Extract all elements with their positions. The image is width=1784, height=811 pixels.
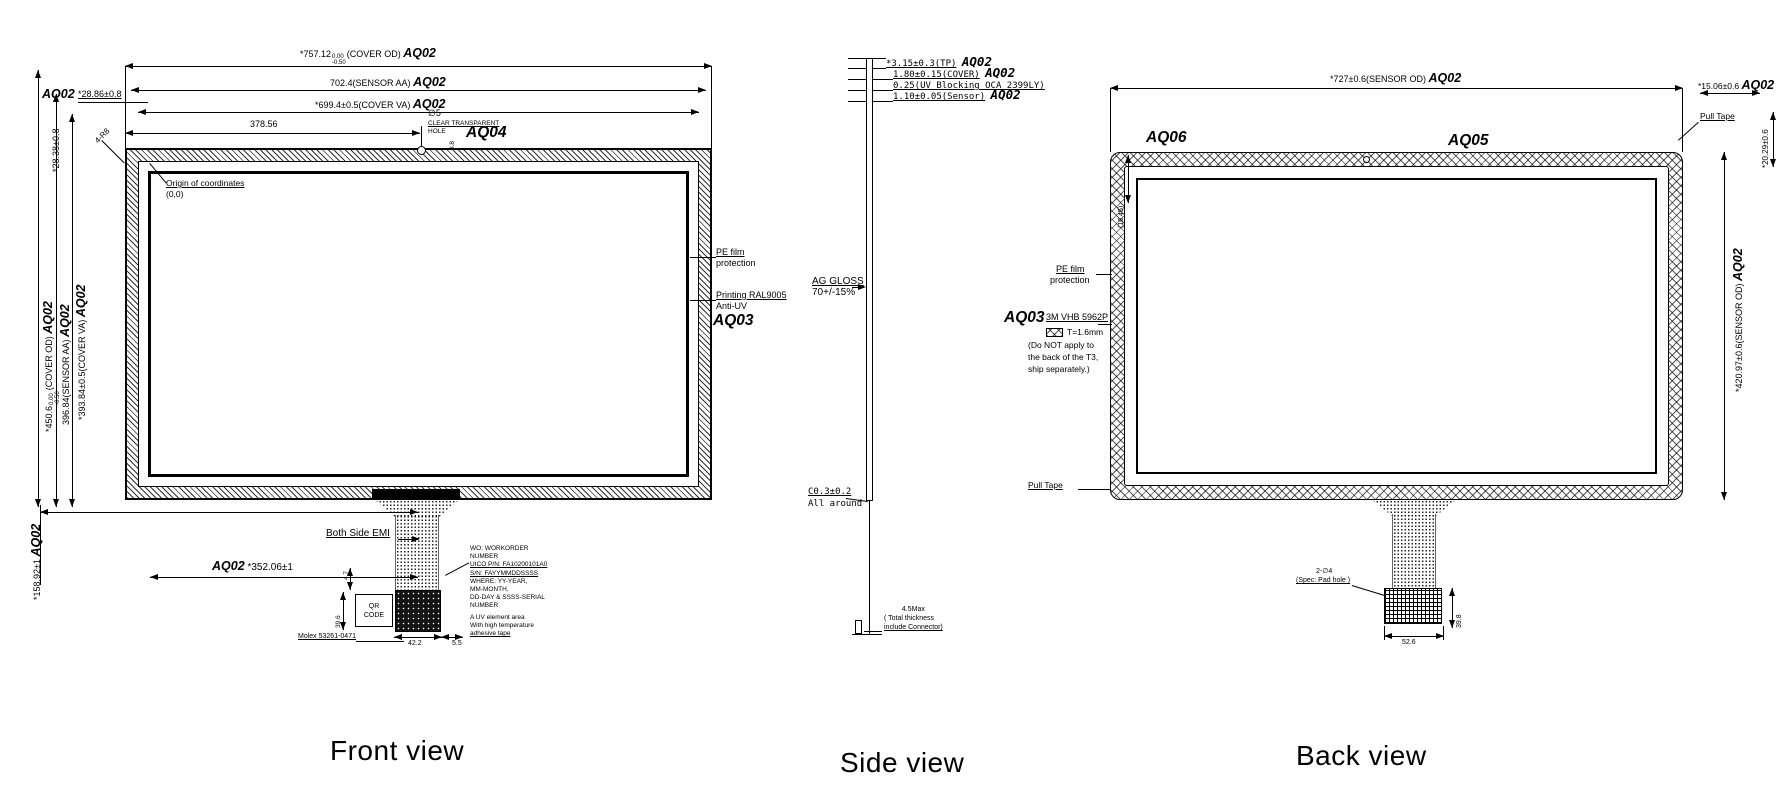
side-view-title: Side view: [840, 747, 964, 779]
pull-tape-bottom-label: Pull Tape: [1028, 481, 1063, 490]
dim-cover-va-width: *699.4±0.5(COVER VA) AQ02: [315, 98, 446, 111]
back-view-title: Back view: [1296, 740, 1427, 772]
dim-line: [1452, 588, 1453, 628]
note-line: MM-MONTH,: [470, 586, 578, 594]
emi-label: Both Side EMI: [326, 529, 390, 540]
workorder-note: WO: WORKORDER NUMBER UICO P/N: FA1020010…: [470, 545, 578, 611]
dim-corner-h: *28.86±0.8: [78, 90, 121, 99]
back-panel-outline: [1110, 152, 1683, 500]
back-inner-outline: [1124, 166, 1669, 486]
dim-line: [131, 90, 706, 91]
dim-line: [441, 637, 463, 638]
back-pe-film-label: PE film: [1056, 265, 1085, 274]
leader-line: [690, 257, 716, 258]
transparent-hole: [417, 146, 426, 155]
side-connector-end: [855, 620, 862, 634]
note-line: 4.5Max: [884, 605, 943, 614]
dim-line: [125, 133, 420, 134]
printing-label: Printing RAL9005: [716, 291, 787, 300]
total-thickness-note: 4.5Max ( Total thickness include Connect…: [884, 605, 943, 632]
callout-aq03-back: AQ03: [1004, 310, 1045, 326]
ag-gloss-value: 70+/-15%: [812, 288, 855, 299]
qr-label: QR: [369, 603, 380, 610]
leader-line: [1352, 585, 1387, 596]
qr-code-block: [395, 590, 441, 632]
dim-line: [1110, 88, 1683, 89]
dim-sensor-od-height: *420.97±0.6(SENSOR OD) AQ02: [1732, 152, 1745, 392]
pe-film-label: PE film: [716, 248, 745, 257]
dim-hole-offset: 378.56: [250, 120, 278, 129]
qr-code-label-box: QR CODE: [355, 594, 393, 627]
pad-hole-note: 2-∅4: [1316, 568, 1332, 575]
leader-line: [1098, 324, 1112, 325]
leader-line: [445, 562, 469, 576]
vhb-thickness: T=1.6mm: [1067, 328, 1103, 337]
leader-line: [356, 641, 404, 642]
dim-line: [343, 592, 344, 630]
dim-cover-od-width: *757.120.00-0.50(COVER OD) AQ02: [300, 47, 436, 66]
leader-line: [1096, 274, 1112, 275]
side-section-bar: [866, 58, 873, 501]
leader-line: [690, 300, 716, 301]
back-sensor-area: [1136, 178, 1657, 474]
origin-coords: (0,0): [166, 190, 183, 199]
leader-line: [864, 631, 882, 632]
callout-aq06: AQ06: [1146, 130, 1187, 146]
hole-diameter: ∅5: [428, 109, 441, 118]
dim-line: [350, 568, 351, 590]
dim-line: [150, 577, 418, 578]
note-line: UICO P/N: FA10200101A0: [470, 561, 578, 569]
pull-tape-top-label: Pull Tape: [1700, 112, 1735, 121]
dim-cover-va-height: *393.84±0.5(COVER VA) AQ02: [75, 225, 88, 420]
dim-15-06: *15.06±0.6 AQ02: [1698, 79, 1774, 92]
front-sensor-outline: [138, 161, 699, 487]
connector-foot: [852, 634, 882, 635]
vhb-tape-name: 3M VHB 5962P: [1046, 313, 1108, 322]
vhb-note3: ship separately.): [1028, 365, 1090, 374]
callout-aq04: AQ04: [466, 125, 507, 141]
pad-hole-note2: (Spec: Pad hole ): [1296, 577, 1350, 584]
note-line: NUMBER: [470, 553, 578, 561]
tail-stem: [395, 515, 439, 592]
note-line: A UV element area: [470, 614, 578, 622]
dim-line: [40, 512, 418, 513]
pad-hole-block: [1384, 588, 1442, 624]
note-line: NUMBER: [470, 602, 578, 610]
note-line: DD-DAY & SSSS-SERIAL: [470, 594, 578, 602]
back-tail-stem: [1392, 514, 1436, 590]
ag-gloss-label: AG GLOSS: [812, 277, 864, 288]
dim-line: [1384, 636, 1444, 637]
front-panel-outline: [125, 148, 712, 500]
note-line: WO: WORKORDER: [470, 545, 578, 553]
stack-dim-sensor: 1.10±0.05(Sensor) AQ02: [893, 88, 1021, 102]
dim-sensor-od-width: *727±0.6(SENSOR OD) AQ02: [1330, 72, 1461, 85]
arrowhead: [858, 284, 866, 290]
dim-52-6: 52.6: [1402, 639, 1416, 646]
chamfer-note2: All around: [808, 500, 862, 509]
callout-aq05: AQ05: [1448, 133, 1489, 149]
dim-tail-y: *158.92±1 AQ02: [30, 512, 43, 600]
dim-39-8: 39.8: [1456, 602, 1463, 628]
dim-line: [394, 637, 442, 638]
dim-line: [1700, 93, 1760, 94]
vhb-note2: the back of the T3,: [1028, 353, 1098, 362]
emi-strip: [372, 489, 460, 498]
dim-16-45: (16.45): [1118, 182, 1125, 228]
extension-line: [711, 66, 712, 148]
hole-height-dim: 8.8: [450, 130, 457, 150]
note-line: adhesive tape: [470, 630, 578, 638]
dim-42-2: 42.2: [408, 640, 422, 647]
dim-5-5: 5.5: [452, 640, 462, 647]
note-line: ( Total thickness: [884, 614, 943, 623]
dim-line: [72, 114, 73, 507]
dim-line: [125, 66, 712, 67]
dim-sensor-aa-width: 702.4(SENSOR AA) AQ02: [330, 76, 446, 89]
hole-note: HOLE: [428, 129, 446, 136]
printing-label2: Anti-UV: [716, 302, 747, 311]
dim-line: [1773, 112, 1774, 167]
chamfer-note: C0.3±0.2: [808, 488, 851, 497]
extension-line: [1110, 88, 1111, 152]
dim-line: [1128, 155, 1129, 203]
front-active-area: [148, 171, 689, 477]
leader-line: [1078, 489, 1110, 490]
callout-aq03-front: AQ03: [713, 313, 754, 329]
vhb-swatch: [1046, 328, 1063, 337]
vhb-note1: (Do NOT apply to: [1028, 341, 1094, 350]
dim-line: [38, 70, 39, 507]
pe-film-label2: protection: [716, 259, 756, 268]
front-view-title: Front view: [330, 735, 464, 767]
leader-line: [421, 126, 422, 146]
connector-line: [869, 500, 870, 635]
note-line: include Connector): [884, 623, 943, 632]
note-line: S/N: FAYYMMDDSSSS: [470, 570, 578, 578]
engineering-drawing: *757.120.00-0.50(COVER OD) AQ02 702.4(SE…: [0, 0, 1784, 811]
note-line: With high temperature: [470, 622, 578, 630]
dim-line: [138, 112, 699, 113]
back-pe-film-label2: protection: [1050, 276, 1090, 285]
dim-sensor-aa-height: 396.84(SENSOR AA) AQ02: [59, 230, 72, 425]
extension-line: [1682, 88, 1683, 152]
uv-element-note: A UV element area With high temperature …: [470, 614, 578, 639]
qr-label2: CODE: [364, 612, 384, 619]
leader-line: [101, 140, 124, 163]
origin-note: Origin of coordinates: [166, 179, 244, 188]
connector-part-number: Molex 53261-0471: [298, 633, 356, 640]
note-line: WHERE: YY-YEAR,: [470, 578, 578, 586]
locating-hole: [1363, 156, 1370, 163]
dim-tail-x: AQ02 *352.06±1: [212, 560, 293, 574]
dim-line: [1724, 152, 1725, 500]
leader-line: [78, 102, 148, 103]
